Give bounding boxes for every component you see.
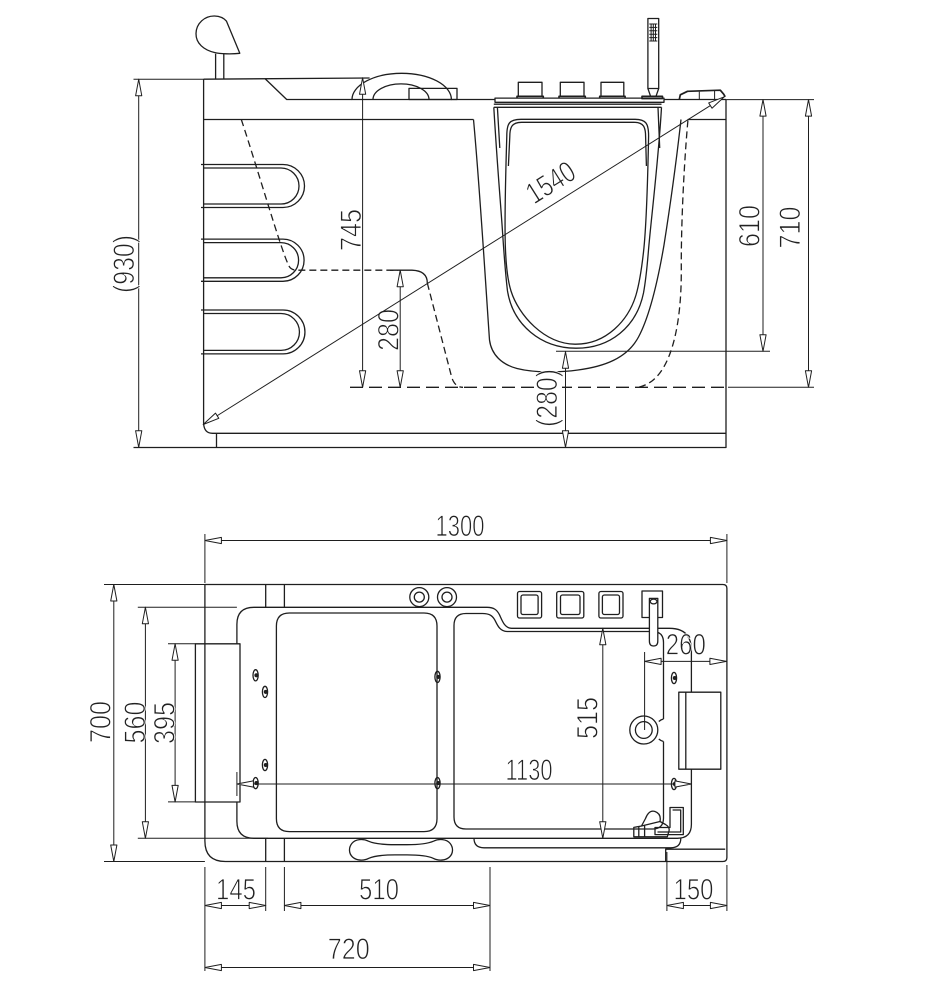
svg-text:700: 700	[84, 701, 117, 743]
svg-text:610: 610	[734, 205, 767, 247]
svg-text:515: 515	[572, 697, 605, 739]
svg-text:(930): (930)	[108, 235, 141, 293]
svg-text:560: 560	[119, 702, 152, 744]
svg-text:145: 145	[216, 874, 256, 907]
svg-text:260: 260	[666, 629, 706, 662]
svg-text:1540: 1540	[520, 155, 582, 211]
svg-text:150: 150	[674, 874, 714, 907]
svg-text:745: 745	[335, 209, 368, 251]
svg-text:395: 395	[149, 702, 182, 744]
svg-text:(280): (280)	[531, 369, 564, 427]
svg-text:510: 510	[359, 874, 399, 907]
svg-text:1300: 1300	[436, 510, 485, 543]
svg-text:710: 710	[774, 207, 807, 249]
svg-text:720: 720	[328, 933, 370, 966]
svg-text:1130: 1130	[506, 754, 553, 787]
